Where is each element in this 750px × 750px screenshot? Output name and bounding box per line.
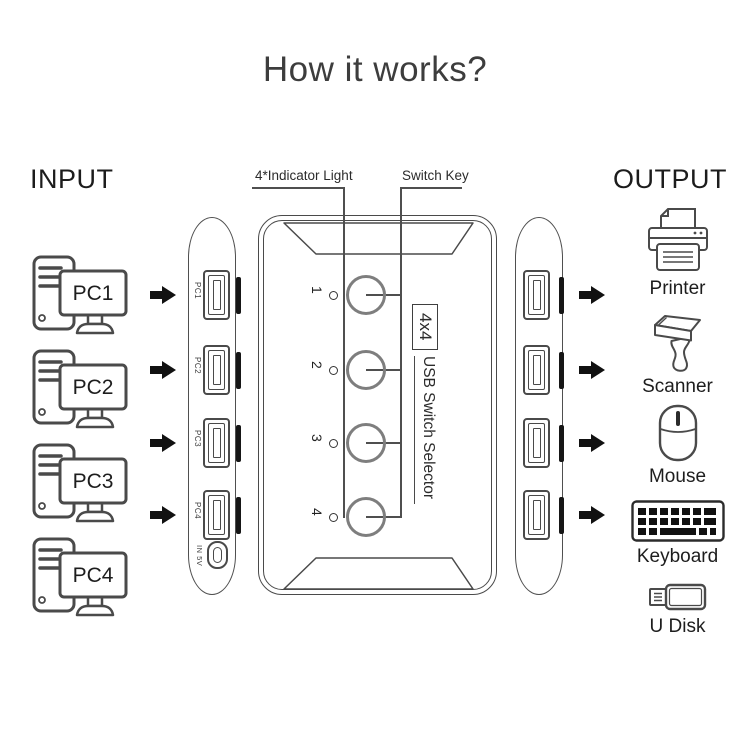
button-number: 2 bbox=[310, 361, 324, 369]
device-name: USB Switch Selector bbox=[414, 356, 438, 504]
printer-icon bbox=[645, 204, 711, 274]
model-label: 4x4 bbox=[415, 313, 435, 340]
right-arrow-icon bbox=[579, 361, 605, 379]
right-arrow-icon bbox=[579, 286, 605, 304]
port-label: PC4 bbox=[192, 502, 202, 519]
output-label: U Disk bbox=[620, 616, 735, 638]
pc-label: PC3 bbox=[73, 470, 114, 493]
indicator-light bbox=[329, 439, 338, 448]
output-item-keyboard: Keyboard bbox=[620, 500, 735, 568]
output-heading: OUTPUT bbox=[613, 164, 727, 195]
input-heading: INPUT bbox=[30, 164, 114, 195]
pc-label: PC4 bbox=[73, 564, 114, 587]
switch-key-annotation: Switch Key bbox=[402, 168, 469, 183]
indicator-light-annotation: 4*Indicator Light bbox=[255, 168, 353, 183]
indicator-callout-line bbox=[343, 187, 345, 518]
model-badge: 4x4 bbox=[412, 304, 438, 350]
button-number: 1 bbox=[310, 286, 324, 294]
output-item-mouse: Mouse bbox=[620, 404, 735, 488]
port-tab bbox=[559, 352, 564, 389]
usb-a-port-icon bbox=[203, 418, 230, 468]
port-label: PC2 bbox=[192, 357, 202, 374]
output-item-printer: Printer bbox=[620, 204, 735, 300]
desktop-pc-icon: PC2 bbox=[30, 347, 130, 431]
output-item-udisk: U Disk bbox=[620, 582, 735, 638]
right-arrow-icon bbox=[150, 434, 176, 452]
right-arrow-icon bbox=[150, 361, 176, 379]
barcode-scanner-icon bbox=[648, 310, 708, 372]
switch-key-button bbox=[346, 497, 386, 537]
button-number: 3 bbox=[310, 434, 324, 442]
port-tab bbox=[559, 425, 564, 462]
page-title: How it works? bbox=[0, 50, 750, 90]
diagram-canvas: How it works? INPUT OUTPUT PC1 PC2 bbox=[0, 0, 750, 750]
port-tab bbox=[236, 277, 241, 314]
pc1-item: PC1 bbox=[30, 253, 130, 342]
right-arrow-icon bbox=[150, 506, 176, 524]
switch-key-button bbox=[346, 350, 386, 390]
usb-drive-icon bbox=[648, 582, 708, 612]
output-label: Printer bbox=[620, 278, 735, 300]
usb-a-port-icon bbox=[203, 345, 230, 395]
switch-key-button bbox=[346, 275, 386, 315]
indicator-light bbox=[329, 291, 338, 300]
right-arrow-icon bbox=[579, 506, 605, 524]
pc3-item: PC3 bbox=[30, 441, 130, 530]
desktop-pc-icon: PC3 bbox=[30, 441, 130, 525]
pc2-item: PC2 bbox=[30, 347, 130, 436]
usb-a-port-icon bbox=[523, 490, 550, 540]
callout-underline bbox=[252, 187, 343, 189]
power-label: IN 5V bbox=[194, 545, 204, 566]
switch-key-button bbox=[346, 423, 386, 463]
indicator-light bbox=[329, 513, 338, 522]
port-tab bbox=[236, 497, 241, 534]
usb-a-port-icon bbox=[523, 418, 550, 468]
usb-a-port-icon bbox=[523, 345, 550, 395]
indicator-light bbox=[329, 366, 338, 375]
device-name-label: USB Switch Selector bbox=[415, 356, 438, 499]
device-grille bbox=[259, 216, 498, 596]
port-tab bbox=[559, 497, 564, 534]
port-tab bbox=[236, 425, 241, 462]
output-item-scanner: Scanner bbox=[620, 310, 735, 398]
callout-underline bbox=[400, 187, 462, 189]
port-tab bbox=[559, 277, 564, 314]
pc-label: PC2 bbox=[73, 376, 114, 399]
right-arrow-icon bbox=[579, 434, 605, 452]
usb-switch-top-view bbox=[258, 215, 497, 595]
usb-a-port-icon bbox=[203, 270, 230, 320]
pc-label: PC1 bbox=[73, 282, 114, 305]
pc4-item: PC4 bbox=[30, 535, 130, 624]
right-arrow-icon bbox=[150, 286, 176, 304]
mouse-icon bbox=[658, 404, 698, 462]
desktop-pc-icon: PC1 bbox=[30, 253, 130, 337]
usb-a-port-icon bbox=[523, 270, 550, 320]
usb-c-port-icon bbox=[207, 541, 228, 569]
keyboard-icon bbox=[631, 500, 725, 542]
port-tab bbox=[236, 352, 241, 389]
button-number: 4 bbox=[310, 508, 324, 516]
desktop-pc-icon: PC4 bbox=[30, 535, 130, 619]
switch-callout-line bbox=[400, 187, 402, 518]
usb-a-port-icon bbox=[203, 490, 230, 540]
port-label: PC1 bbox=[192, 282, 202, 299]
port-label: PC3 bbox=[192, 430, 202, 447]
output-label: Keyboard bbox=[620, 546, 735, 568]
output-label: Mouse bbox=[620, 466, 735, 488]
monitor-base bbox=[77, 324, 113, 333]
output-label: Scanner bbox=[620, 376, 735, 398]
